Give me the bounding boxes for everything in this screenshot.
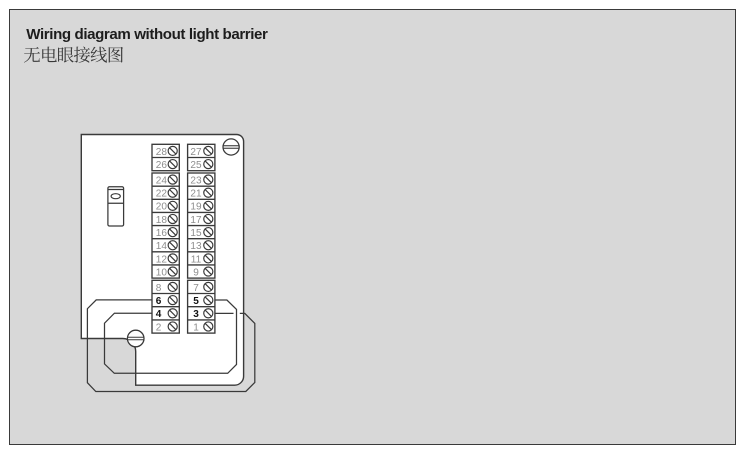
svg-text:5: 5 — [193, 296, 199, 307]
svg-text:6: 6 — [156, 296, 162, 307]
svg-text:2: 2 — [156, 322, 162, 333]
svg-text:28: 28 — [156, 147, 168, 158]
svg-text:17: 17 — [190, 215, 202, 226]
svg-text:8: 8 — [156, 283, 162, 294]
svg-text:21: 21 — [190, 189, 202, 200]
svg-text:9: 9 — [193, 267, 199, 278]
svg-text:23: 23 — [190, 175, 202, 186]
svg-text:7: 7 — [193, 283, 199, 294]
svg-text:24: 24 — [156, 175, 168, 186]
svg-text:25: 25 — [190, 160, 202, 171]
svg-text:10: 10 — [156, 267, 168, 278]
svg-text:13: 13 — [190, 241, 202, 252]
svg-text:1: 1 — [193, 322, 199, 333]
svg-text:26: 26 — [156, 160, 168, 171]
svg-text:15: 15 — [190, 228, 202, 239]
svg-text:16: 16 — [156, 228, 168, 239]
svg-text:20: 20 — [156, 202, 168, 213]
svg-text:18: 18 — [156, 215, 168, 226]
svg-text:19: 19 — [190, 202, 202, 213]
svg-text:3: 3 — [193, 309, 199, 320]
svg-text:27: 27 — [190, 147, 202, 158]
svg-text:4: 4 — [156, 309, 162, 320]
svg-text:14: 14 — [156, 241, 168, 252]
svg-text:12: 12 — [156, 254, 168, 265]
svg-text:22: 22 — [156, 189, 168, 200]
svg-text:11: 11 — [191, 254, 202, 265]
